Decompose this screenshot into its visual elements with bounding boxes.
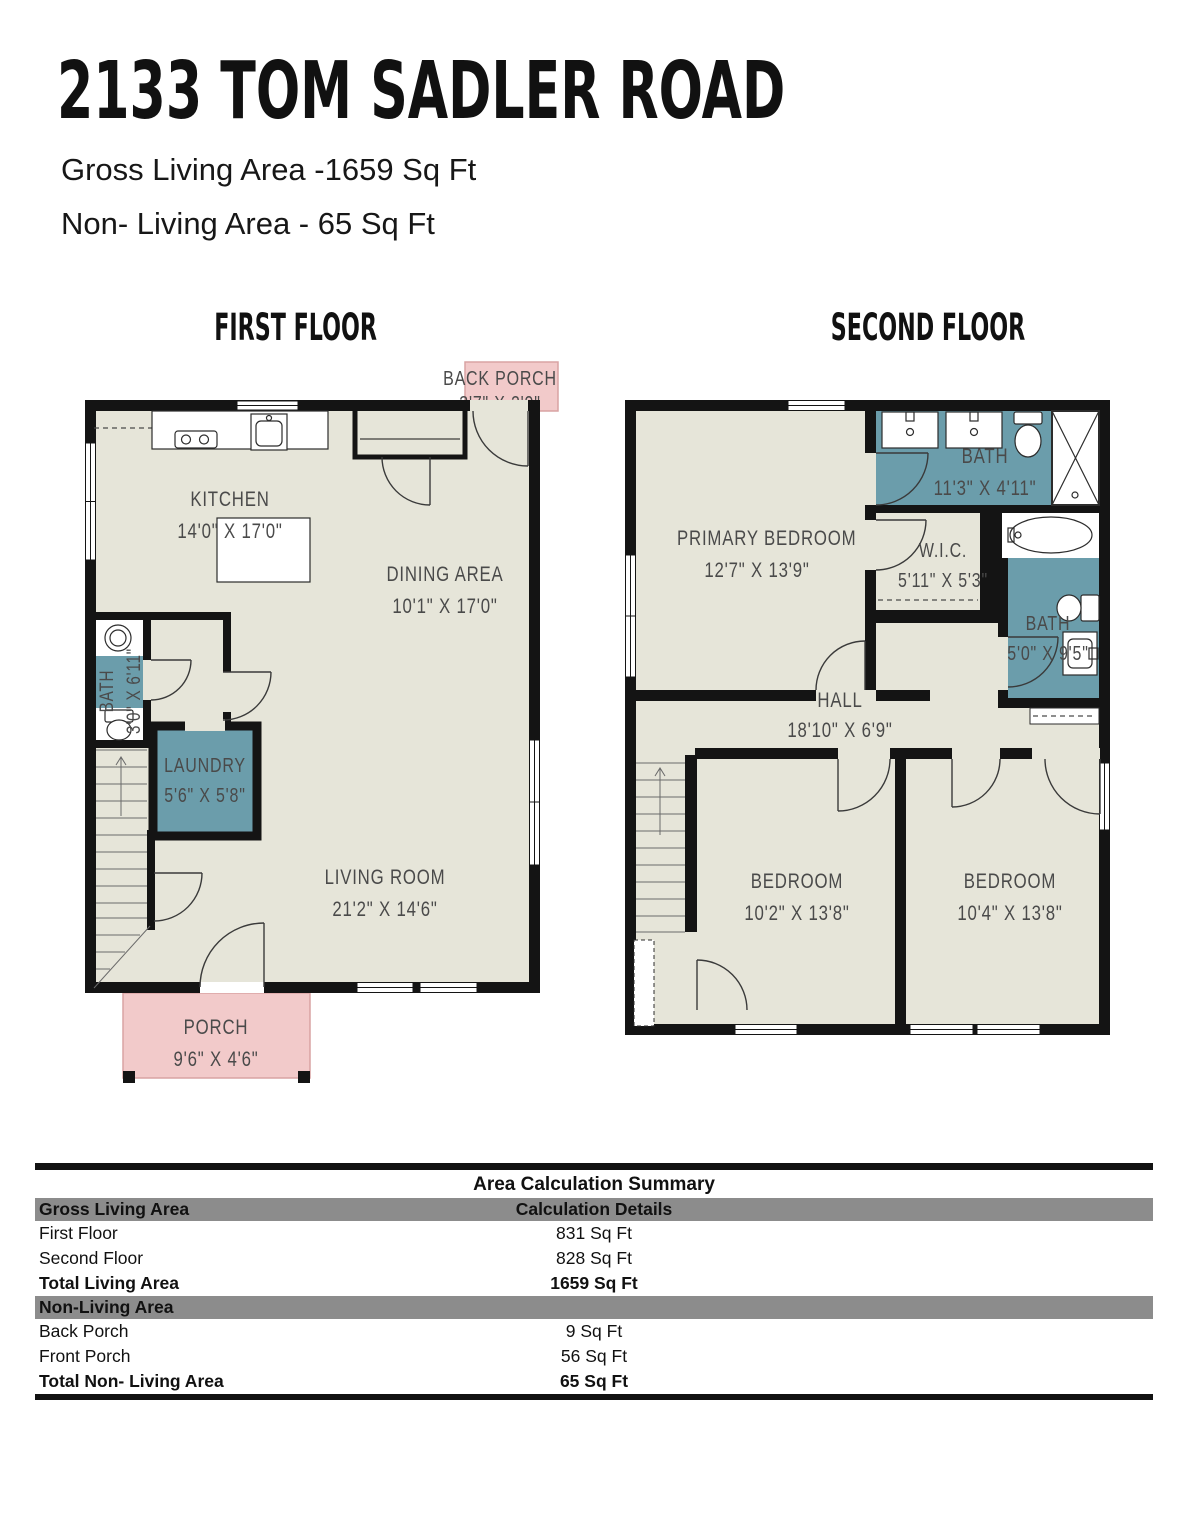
back-porch-door-gap xyxy=(470,400,528,411)
second-floor-heading: SECOND FLOOR xyxy=(766,308,976,348)
first-floor-drawing: BACK PORCH 3'7" X 2'9" xyxy=(83,358,563,1088)
front-door-gap xyxy=(200,982,264,993)
under-stair-closet xyxy=(634,940,654,1026)
room-label-bath1: BATH 11'3" X 4'11" xyxy=(885,441,1085,505)
room-label-primary-bedroom: PRIMARY BEDROOM 12'7" X 13'9" xyxy=(657,523,857,587)
first-floor-plan: BACK PORCH 3'7" X 2'9" xyxy=(83,358,563,1088)
room-label-laundry: LAUNDRY 5'6" X 5'8" xyxy=(105,751,305,811)
back-porch-label: BACK PORCH xyxy=(443,367,557,389)
second-floor-plan: PRIMARY BEDROOM 12'7" X 13'9" BATH 11'3"… xyxy=(620,395,1115,1045)
toilet-icon xyxy=(1014,412,1042,424)
bedroom2-closet xyxy=(1030,708,1099,724)
summary-row-back-porch: Back Porch 9 Sq Ft xyxy=(35,1319,1153,1344)
summary-row-total-living: Total Living Area 1659 Sq Ft xyxy=(35,1271,1153,1296)
gross-living-area-subtitle: Gross Living Area -1659 Sq Ft xyxy=(61,152,476,188)
room-label-kitchen: KITCHEN 14'0" X 17'0" xyxy=(130,484,330,548)
laundry-door-gap xyxy=(185,719,225,731)
area-summary-table: Area Calculation Summary Gross Living Ar… xyxy=(35,1163,1153,1400)
nook-door-gap xyxy=(223,672,231,712)
room-label-wic: W.I.C. 5'11" X 5'3" xyxy=(843,536,1043,596)
summary-row-second-floor: Second Floor 828 Sq Ft xyxy=(35,1246,1153,1271)
room-label-hall: HALL 18'10" X 6'9" xyxy=(740,686,940,746)
room-label-bedroom2: BEDROOM 10'4" X 13'8" xyxy=(910,866,1110,930)
summary-row-total-non-living: Total Non- Living Area 65 Sq Ft xyxy=(35,1369,1153,1394)
summary-row-front-porch: Front Porch 56 Sq Ft xyxy=(35,1344,1153,1369)
first-floor-heading: FIRST FLOOR xyxy=(160,308,370,348)
non-living-area-subtitle: Non- Living Area - 65 Sq Ft xyxy=(61,206,435,242)
room-label-bath2: BATH 5'0" X 9'5" xyxy=(948,609,1148,669)
summary-title: Area Calculation Summary xyxy=(35,1170,1153,1198)
room-label-dining-area: DINING AREA 10'1" X 17'0" xyxy=(345,559,545,623)
floor-plan-page: 2133 TOM SADLER ROAD Gross Living Area -… xyxy=(0,0,1187,1536)
summary-header-non-living: Non-Living Area xyxy=(35,1296,1153,1319)
room-label-living-room: LIVING ROOM 21'2" X 14'6" xyxy=(285,862,485,926)
room-label-porch: PORCH 9'6" X 4'6" xyxy=(116,1012,316,1076)
room-label-bath: BATH 3'0" X 6'11" xyxy=(94,616,148,766)
room-label-bedroom1: BEDROOM 10'2" X 13'8" xyxy=(697,866,897,930)
summary-header-gross-living: Gross Living Area Calculation Details xyxy=(35,1198,1153,1221)
page-title: 2133 TOM SADLER ROAD xyxy=(57,48,1160,134)
summary-row-first-floor: First Floor 831 Sq Ft xyxy=(35,1221,1153,1246)
